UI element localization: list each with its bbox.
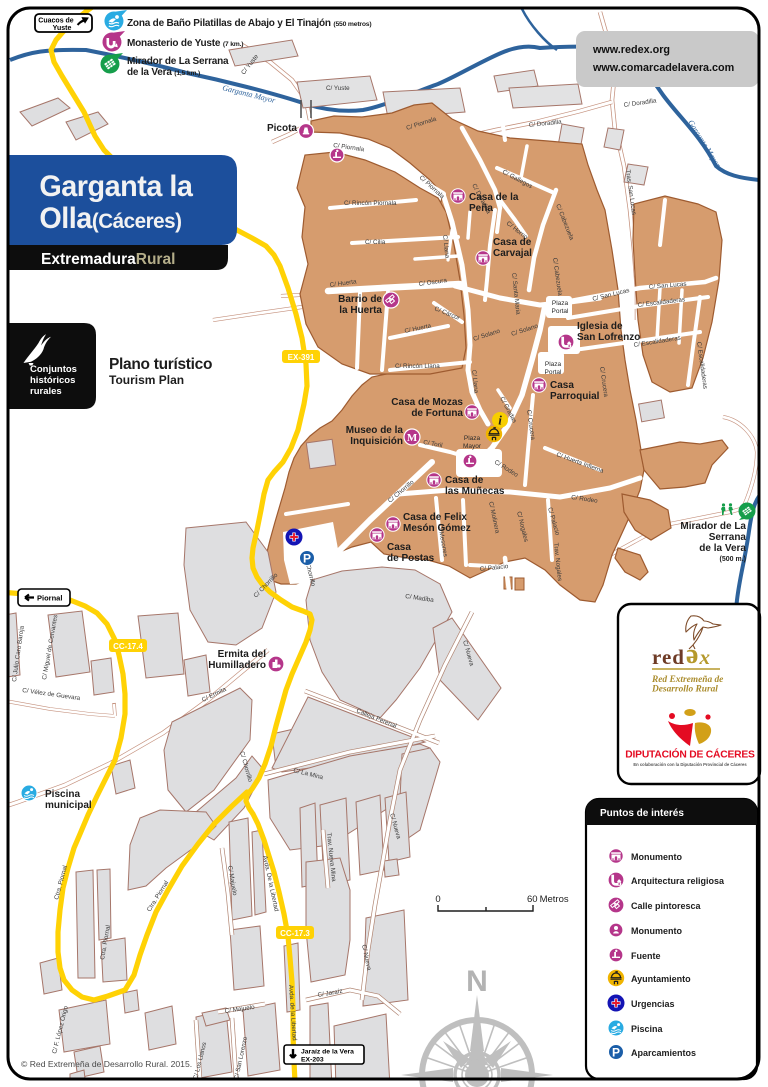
svg-text:Casa de: Casa de [445,475,484,486]
svg-text:0: 0 [435,894,440,905]
svg-text:EX-203: EX-203 [301,1057,324,1064]
svg-text:Casa: Casa [550,380,574,391]
svg-text:Humilladero: Humilladero [208,660,266,671]
svg-text:Piornal: Piornal [37,594,62,603]
svg-text:red: red [652,645,685,669]
svg-text:C/ Cilia: C/ Cilia [365,239,386,246]
svg-text:Portal: Portal [545,369,563,376]
svg-text:Aparcamientos: Aparcamientos [631,1048,696,1058]
svg-text:ExtremaduraRural: ExtremaduraRural [41,251,175,268]
svg-text:de la Vera: de la Vera [699,543,746,554]
svg-text:Monumento: Monumento [631,926,682,936]
svg-text:la Huerta: la Huerta [339,305,382,316]
svg-text:Casa: Casa [387,542,411,553]
svg-text:C/ Rincón Llana: C/ Rincón Llana [395,363,440,370]
svg-text:En colaboración con la Diputac: En colaboración con la Diputación Provin… [633,762,747,767]
svg-text:Plano turístico: Plano turístico [109,356,212,373]
svg-text:Mirador de La Serrana: Mirador de La Serrana [127,56,229,67]
svg-text:60Metros: 60Metros [527,894,569,905]
svg-text:Puntos de interés: Puntos de interés [600,808,684,819]
svg-text:Casa de: Casa de [493,237,532,248]
svg-text:Carvajal: Carvajal [493,248,532,259]
svg-text:Red Extremeña de: Red Extremeña de [651,675,723,685]
svg-text:N: N [466,965,488,998]
svg-text:Plaza: Plaza [464,435,481,442]
svg-text:(500 m.): (500 m.) [720,556,746,563]
svg-text:las Muñecas: las Muñecas [445,486,505,497]
svg-text:Museo de la: Museo de la [346,425,404,436]
svg-text:Jaraíz de la Vera: Jaraíz de la Vera [301,1049,354,1056]
svg-text:Tourism Plan: Tourism Plan [109,373,184,387]
svg-text:Ermita del: Ermita del [218,649,267,660]
svg-text:Piscina: Piscina [45,789,80,800]
svg-text:rurales: rurales [30,386,62,397]
svg-text:San Lofrenzo: San Lofrenzo [577,332,640,343]
svg-text:Fuente: Fuente [631,951,661,961]
svg-text:C/ Rincón Piornala: C/ Rincón Piornala [344,200,397,207]
svg-text:Calle pintoresca: Calle pintoresca [631,901,702,911]
svg-text:Parroquial: Parroquial [550,391,600,402]
svg-text:Casa de Felix: Casa de Felix [403,512,467,523]
svg-text:Peña: Peña [469,203,493,214]
svg-text:Plaza: Plaza [552,300,569,307]
svg-text:Monumento: Monumento [631,852,682,862]
svg-text:Serrana: Serrana [709,532,747,543]
svg-text:CC-17.3: CC-17.3 [280,929,310,938]
svg-text:municipal: municipal [45,800,92,811]
svg-text:Portal: Portal [552,308,570,315]
svg-text:EX-391: EX-391 [288,353,315,362]
svg-text:www.redex.org: www.redex.org [592,44,670,56]
svg-text:CC-17.4: CC-17.4 [113,642,143,651]
svg-text:Plaza: Plaza [545,361,562,368]
svg-text:Desarrollo Rural: Desarrollo Rural [651,685,718,695]
svg-text:Yuste: Yuste [53,25,72,32]
svg-text:Casa de la: Casa de la [469,192,519,203]
svg-text:de Fortuna: de Fortuna [411,408,463,419]
svg-text:Iglesia de: Iglesia de [577,321,623,332]
svg-text:Barrio de: Barrio de [338,294,382,305]
svg-text:x: x [699,645,711,669]
svg-text:Garganta la: Garganta la [39,169,193,203]
svg-text:Picota: Picota [267,123,297,134]
svg-text:de Postas: de Postas [387,553,435,564]
svg-text:C/ Yuste: C/ Yuste [326,85,350,92]
svg-text:Piscina: Piscina [631,1024,664,1034]
svg-text:DIPUTACIÓN DE CÁCERES: DIPUTACIÓN DE CÁCERES [625,748,755,761]
svg-text:Inquisición: Inquisición [350,436,403,447]
svg-text:www.comarcadelavera.com: www.comarcadelavera.com [592,62,734,74]
svg-text:Arquitectura religiosa: Arquitectura religiosa [631,876,725,886]
svg-text:Ayuntamiento: Ayuntamiento [631,974,691,984]
svg-text:Mirador de La: Mirador de La [680,521,746,532]
svg-text:Casa de Mozas: Casa de Mozas [391,397,463,408]
svg-text:Urgencias: Urgencias [631,999,675,1009]
svg-text:Conjuntos: Conjuntos [30,364,77,375]
svg-text:Cuacos de: Cuacos de [38,18,74,25]
svg-text:© Red Extremeña de Desarrollo: © Red Extremeña de Desarrollo Rural. 201… [21,1059,192,1069]
svg-text:históricos: históricos [30,375,75,386]
svg-text:Mesón Gómez: Mesón Gómez [403,523,471,534]
svg-text:Mayor: Mayor [463,443,482,450]
